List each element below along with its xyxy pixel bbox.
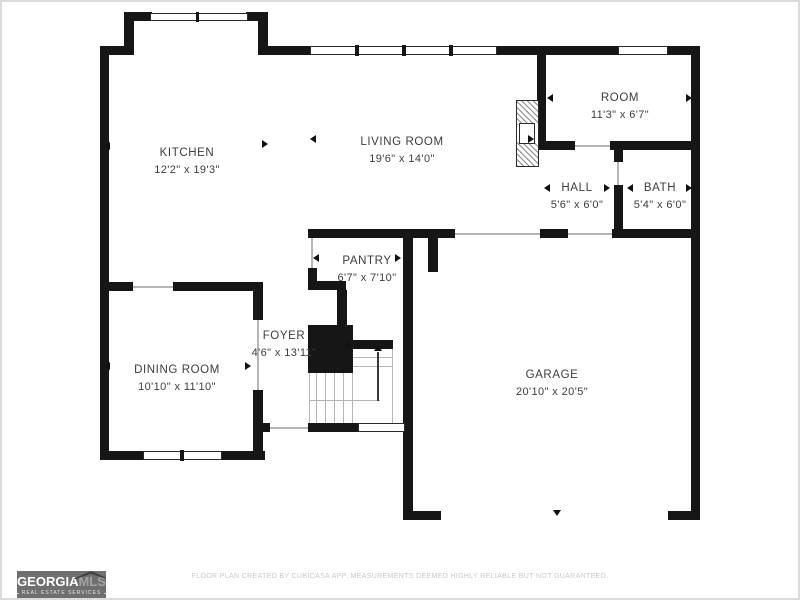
window [618, 46, 668, 55]
dimension-arrow-icon [604, 184, 610, 192]
stair-up-arrow-icon [374, 345, 382, 351]
window-divider [402, 45, 406, 56]
window-divider [196, 12, 199, 22]
dimension-arrow-icon [310, 135, 316, 143]
dimension-arrow-icon [104, 142, 110, 150]
wall [614, 150, 623, 162]
room-name: ROOM [560, 92, 680, 105]
wall [308, 281, 346, 290]
door-opening [575, 145, 610, 147]
dimension-arrow-icon [346, 341, 352, 349]
wall [668, 511, 700, 520]
dimension-arrow-icon [262, 140, 268, 148]
wall [253, 282, 263, 320]
wall [337, 290, 347, 327]
wall [222, 451, 265, 460]
wall [691, 46, 700, 520]
wall [308, 423, 358, 432]
wall [100, 282, 133, 291]
room-label-garage: GARAGE 20'10" x 20'5" [492, 369, 612, 398]
stair-tread [309, 373, 310, 423]
room-label-room: ROOM 11'3" x 6'7" [560, 92, 680, 121]
fireplace-icon [516, 100, 539, 167]
stair-landing-edge [392, 349, 393, 423]
door-opening [568, 233, 612, 235]
stair-tread [316, 373, 317, 423]
dimension-arrow-icon [313, 254, 319, 262]
stair-tread [343, 373, 344, 423]
fireplace-hatch [517, 142, 538, 166]
dimension-arrow-icon [686, 94, 692, 102]
dimension-arrow-icon [245, 362, 251, 370]
dimension-arrow-icon [395, 254, 401, 262]
wall [100, 451, 143, 460]
room-name: DINING ROOM [117, 364, 237, 377]
window-divider [449, 45, 453, 56]
floor-plan: KITCHEN 12'2" x 19'3" LIVING ROOM 19'6" … [0, 0, 800, 600]
wall [308, 229, 455, 238]
door-opening [133, 286, 173, 288]
room-name: LIVING ROOM [342, 136, 462, 149]
stair-landing-line [353, 366, 392, 367]
wall [173, 282, 253, 291]
door-opening [617, 162, 619, 185]
stair-tread [334, 373, 335, 423]
room-label-living-room: LIVING ROOM 19'6" x 14'0" [342, 136, 462, 165]
stair-direction-line [377, 352, 379, 401]
window [358, 423, 405, 432]
window-divider [355, 45, 359, 56]
stairs-block [308, 325, 353, 373]
wall [100, 46, 109, 460]
wall [612, 229, 700, 238]
wall [253, 423, 270, 432]
dimension-arrow-icon [686, 184, 692, 192]
stair-tread [325, 373, 326, 423]
wall [403, 238, 413, 520]
image-border [0, 0, 800, 600]
dimension-arrow-icon [528, 135, 534, 143]
room-dimensions: 12'2" x 19'3" [127, 164, 247, 176]
room-dimensions: 19'6" x 14'0" [342, 153, 462, 165]
room-label-kitchen: KITCHEN 12'2" x 19'3" [127, 147, 247, 176]
stair-winder-line [309, 400, 380, 401]
disclaimer-text: FLOOR PLAN CREATED BY CUBICASA APP. MEAS… [0, 573, 800, 580]
dimension-arrow-icon [544, 184, 550, 192]
room-name: GARAGE [492, 369, 612, 382]
room-dimensions: 20'10" x 20'5" [492, 386, 612, 398]
door-opening [455, 233, 540, 235]
window-divider [180, 450, 184, 461]
dimension-arrow-icon [104, 362, 110, 370]
wall [540, 229, 568, 238]
fireplace-hatch [517, 101, 538, 125]
wall [124, 12, 152, 21]
stair-landing-line [353, 357, 392, 358]
room-dimensions: 10'10" x 11'10" [117, 381, 237, 393]
wall [258, 46, 310, 55]
room-dimensions: 11'3" x 6'7" [560, 109, 680, 121]
door-opening [257, 320, 259, 390]
stair-tread [352, 373, 353, 423]
wall [537, 141, 575, 150]
door-opening [311, 238, 313, 268]
wall [610, 141, 700, 150]
dimension-arrow-icon [553, 510, 561, 516]
door-opening [270, 427, 308, 429]
logo-tagline: REAL ESTATE SERVICES [17, 590, 106, 596]
room-name: KITCHEN [127, 147, 247, 160]
dimension-arrow-icon [627, 184, 633, 192]
dimension-arrow-icon [547, 94, 553, 102]
window [150, 13, 248, 21]
wall [497, 46, 618, 55]
wall [428, 238, 438, 272]
room-label-dining-room: DINING ROOM 10'10" x 11'10" [117, 364, 237, 393]
wall [353, 340, 393, 349]
